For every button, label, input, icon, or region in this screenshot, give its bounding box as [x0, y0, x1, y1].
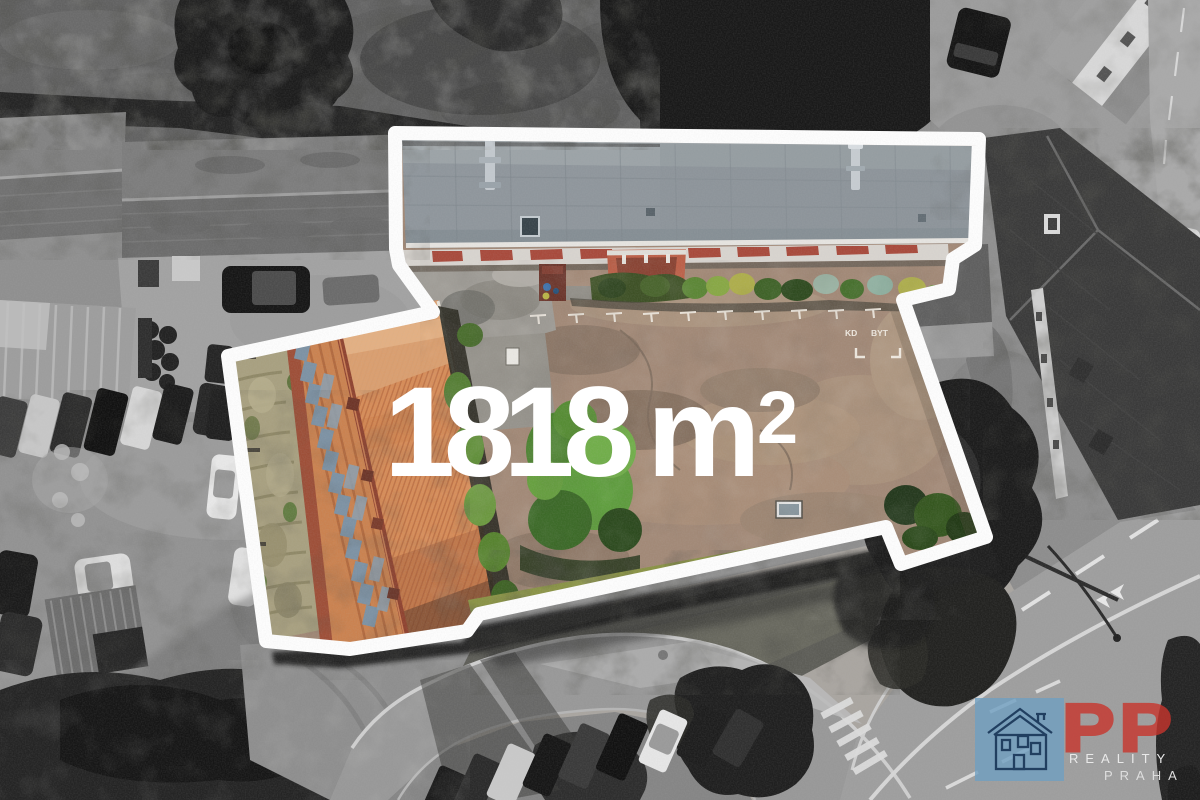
svg-text:2: 2: [757, 376, 798, 459]
svg-text:1818 m: 1818 m: [384, 361, 753, 504]
svg-text:REALITY: REALITY: [1069, 751, 1172, 766]
svg-text:PRAHA: PRAHA: [1104, 768, 1184, 783]
